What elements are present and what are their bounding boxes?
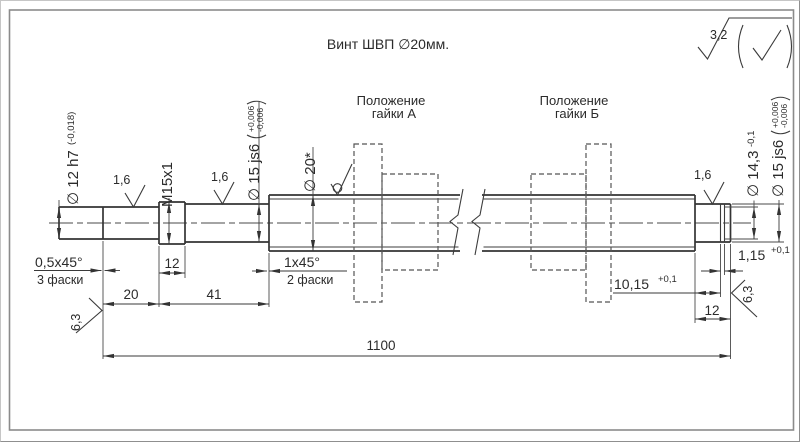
- paren-open-icon: [739, 25, 744, 68]
- tol-paren-close-icon: [771, 97, 790, 100]
- thread-main: M15x1: [159, 162, 176, 207]
- dia20-main: ∅ 20*: [302, 152, 319, 192]
- dia12-tol: (-0,018): [66, 112, 77, 145]
- drawing-page: Винт ШВП ∅20мм. Положение гайки А Положе…: [0, 0, 800, 442]
- nut-a-caption-line2: гайки А: [372, 106, 417, 121]
- label-face-roughness-left: 6,3: [69, 314, 83, 331]
- dia15-right-tol-lower: -0,006: [779, 104, 789, 128]
- roughness-symbols: [76, 18, 792, 333]
- face-roughness-right-value: 6,3: [741, 286, 755, 303]
- dim-groove-width: 1,15: [738, 247, 765, 263]
- dim-41: 41: [206, 287, 221, 302]
- dia12-main: ∅ 12 h7: [65, 150, 82, 205]
- label-dia14-3: ∅ 14,3 -0,1: [745, 131, 762, 197]
- roughness-check-icon: [125, 185, 145, 207]
- roughness-check-icon: [704, 182, 724, 204]
- roughness-1-6-b: 1,6: [211, 170, 228, 184]
- dia15-left-tol-lower: -0,006: [255, 108, 265, 132]
- roughness-1-6-a: 1,6: [113, 173, 130, 187]
- tol-paren-open-icon: [247, 135, 266, 138]
- dim-groove-pos: 10,15: [614, 276, 649, 292]
- label-dia15-right: ∅ 15 js6 +0,006 -0,006: [770, 97, 790, 197]
- dim-groove-width-tol: +0,1: [771, 245, 790, 256]
- break-line-right: [472, 189, 485, 255]
- dim-journal-length: 12: [704, 303, 719, 318]
- label-face-roughness-right: 6,3: [741, 286, 755, 303]
- dim-total-length: 1100: [366, 338, 395, 353]
- chamfer-left-value: 0,5x45°: [35, 254, 83, 270]
- extension-lines: [59, 102, 784, 359]
- other-surfaces-check-icon: [753, 30, 781, 60]
- roughness-check-icon: [214, 182, 234, 204]
- nut-b-caption-line2: гайки Б: [555, 106, 599, 121]
- roughness-1-6-c: 1,6: [694, 168, 711, 182]
- face-roughness-left-value: 6,3: [69, 314, 83, 331]
- tol-paren-close-icon: [247, 101, 266, 104]
- drawing-canvas: Винт ШВП ∅20мм. Положение гайки А Положе…: [1, 1, 800, 443]
- dia15-left-main: ∅ 15 js6: [246, 144, 263, 201]
- label-dia12: ∅ 12 h7 (-0,018): [65, 112, 82, 205]
- dia14-3-main: ∅ 14,3: [745, 151, 762, 197]
- drawing-border: [10, 10, 794, 430]
- tol-paren-open-icon: [771, 131, 790, 134]
- dia15-right-main: ∅ 15 js6: [770, 140, 787, 197]
- label-dia15-left: ∅ 15 js6 +0,006 -0,006: [246, 101, 266, 201]
- chamfer-mid-value: 1x45°: [284, 254, 320, 270]
- chamfer-left-note: 3 фаски: [37, 273, 83, 287]
- dim-20: 20: [123, 287, 138, 302]
- label-dia20: ∅ 20*: [302, 152, 319, 192]
- label-thread: M15x1: [159, 162, 176, 207]
- general-roughness-value: 3,2: [710, 28, 727, 42]
- dim-thread-length: 12: [164, 256, 179, 271]
- drawing-title: Винт ШВП ∅20мм.: [327, 36, 449, 52]
- chamfer-mid-note: 2 фаски: [287, 273, 333, 287]
- paren-close-icon: [787, 25, 792, 68]
- dia14-3-tol: -0,1: [746, 131, 757, 147]
- dim-groove-pos-tol: +0,1: [658, 274, 677, 285]
